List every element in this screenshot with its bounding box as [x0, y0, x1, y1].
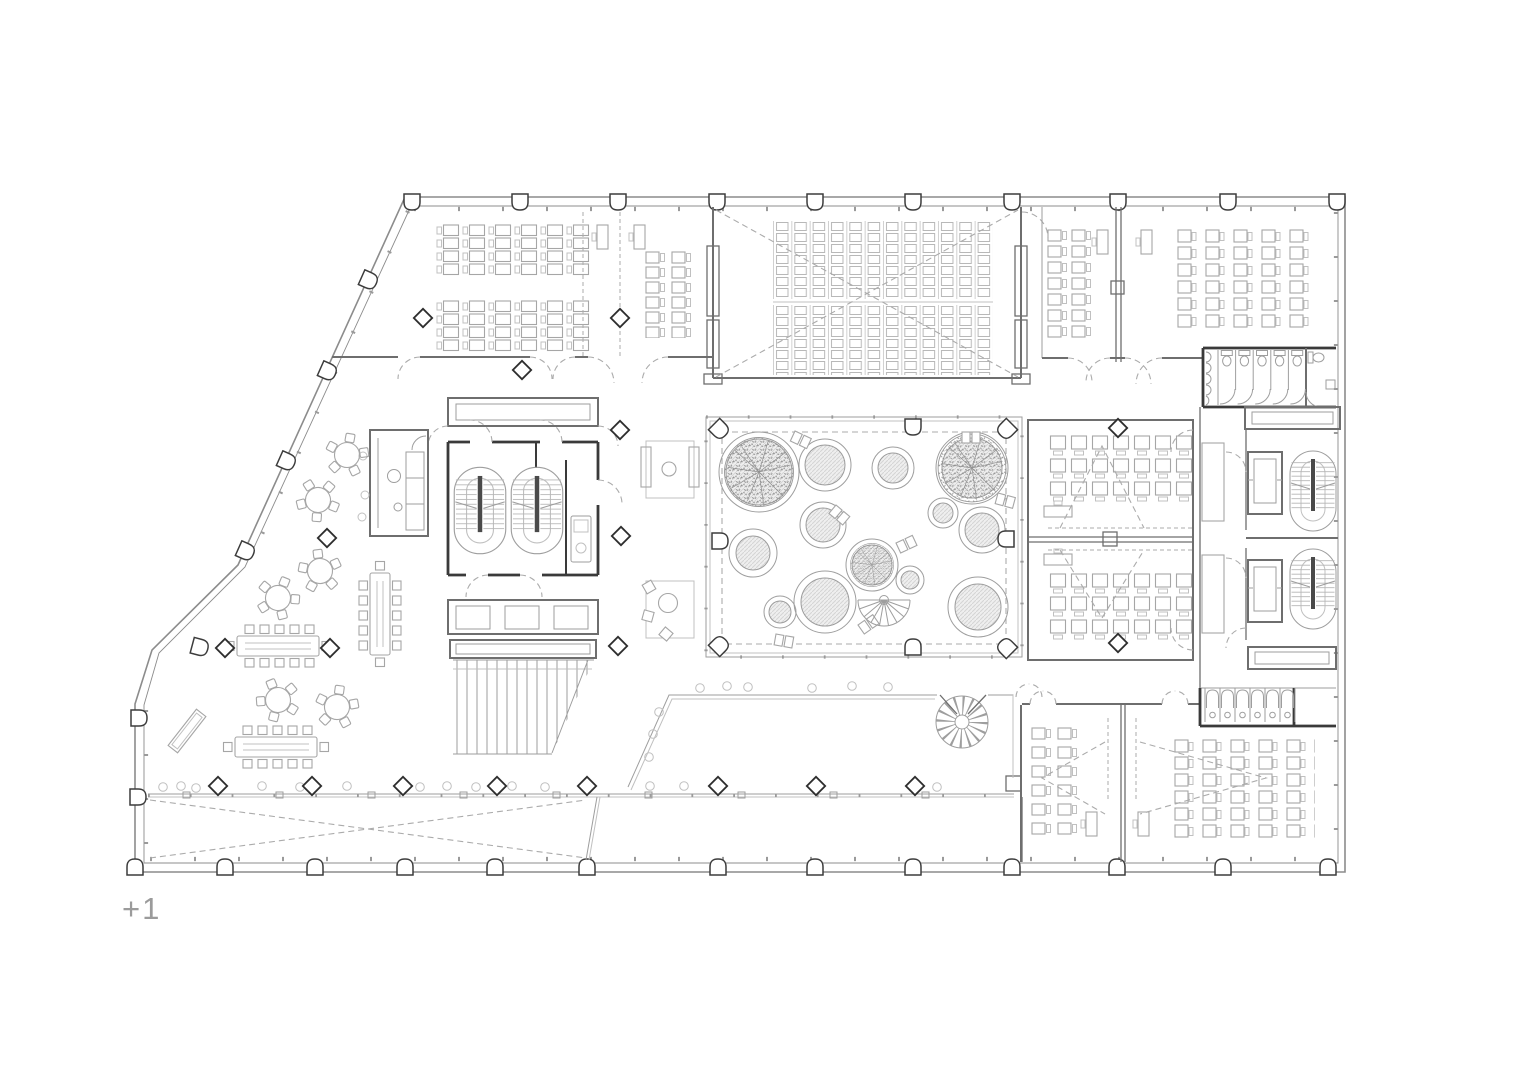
auditorium-seating	[773, 305, 993, 375]
tree-icon	[938, 434, 1006, 502]
spiral-stair-icon	[936, 695, 988, 748]
round-table	[289, 470, 348, 529]
bench	[1245, 407, 1340, 429]
stair-icon	[454, 467, 506, 553]
bench	[448, 398, 598, 426]
round-table	[253, 572, 304, 623]
long-table	[224, 726, 329, 768]
zone-lounge	[641, 441, 699, 641]
stair-icon	[1290, 549, 1336, 629]
zone-classrooms-southeast	[1021, 688, 1336, 862]
floor-level-label: +1	[122, 891, 161, 927]
bench-slats	[1202, 443, 1224, 521]
stair-icon	[511, 467, 563, 553]
long-table	[359, 562, 401, 667]
column	[1111, 281, 1124, 294]
core-central	[428, 398, 622, 754]
accessible-wc	[1306, 352, 1335, 407]
wc-stalls	[1220, 350, 1305, 404]
zone-courtyard	[706, 417, 1022, 659]
void-cross	[150, 800, 586, 858]
lounge-chairs	[642, 580, 673, 641]
elevator-icon	[1248, 452, 1282, 514]
stair-icon	[1290, 451, 1336, 531]
bench	[1248, 647, 1336, 669]
bench	[168, 709, 206, 753]
balcony-edge	[628, 682, 1042, 791]
core-east	[1200, 407, 1340, 688]
round-table	[290, 541, 350, 601]
tribune-steps	[453, 660, 594, 754]
washbasins	[1206, 352, 1211, 405]
zone-classrooms-east	[1028, 420, 1195, 660]
cloakroom	[1200, 688, 1336, 726]
elevator-icon	[1248, 560, 1282, 622]
bar-stools	[645, 682, 893, 762]
building-shell	[127, 194, 1345, 875]
door-swing-arc	[398, 357, 420, 379]
zone-classrooms-northwest	[332, 212, 712, 383]
floor-plan-page: +1	[0, 0, 1530, 1080]
rug	[646, 441, 694, 498]
utility-fixture	[571, 516, 591, 562]
column	[1006, 776, 1021, 791]
zone-classrooms-northeast	[1042, 207, 1315, 384]
floor-plan-drawing	[0, 0, 1530, 1080]
bench-slats	[1202, 555, 1224, 633]
zone-auditorium	[704, 207, 1048, 384]
facade-columns	[127, 194, 1345, 875]
wc-northeast	[1203, 348, 1336, 407]
round-table	[326, 433, 369, 476]
column	[1103, 532, 1117, 546]
bench	[450, 640, 596, 658]
round-table	[248, 670, 309, 731]
zone-cafe	[168, 430, 428, 768]
long-table	[226, 625, 331, 667]
tree-icon	[850, 543, 893, 586]
tree-icon	[725, 438, 794, 507]
reception-counter	[370, 430, 428, 536]
facade-outline	[135, 197, 1345, 872]
round-table	[310, 680, 365, 735]
